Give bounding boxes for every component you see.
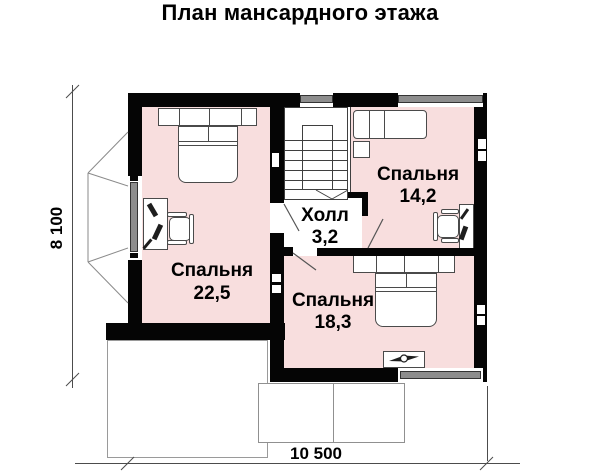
window-jamb xyxy=(130,253,138,258)
bay-window-outline xyxy=(88,132,128,303)
page-title: План мансардного этажа xyxy=(0,0,600,26)
nightstand-symbol xyxy=(353,141,370,158)
double-bed-symbol xyxy=(178,126,238,183)
room-label-bedroom-18: Спальня xyxy=(273,290,393,312)
room-area-bedroom-22: 22,5 xyxy=(152,283,272,305)
wall-center xyxy=(270,93,284,382)
office-chair-symbol xyxy=(437,215,459,238)
terrace-outline xyxy=(107,340,268,458)
wall-bottom-left xyxy=(106,323,285,340)
office-chair-symbol xyxy=(169,217,191,241)
flue-vent xyxy=(478,151,486,161)
headboard-shelf-symbol xyxy=(353,255,455,273)
chair-arm xyxy=(167,212,187,217)
window-top-small xyxy=(300,95,333,103)
chair-arm xyxy=(441,238,459,243)
chair-arm xyxy=(167,240,187,245)
room-label-bedroom-14: Спальня xyxy=(358,164,478,186)
flue-vent xyxy=(477,316,485,325)
dimension-width-label: 10 500 xyxy=(250,444,382,464)
wall-niche xyxy=(272,153,279,167)
bench-symbol xyxy=(383,351,425,368)
room-label-hall: Холл xyxy=(285,205,365,227)
window-top-wide xyxy=(398,95,483,103)
wall-right xyxy=(474,93,487,382)
floor-plan-page: План мансардного этажа xyxy=(0,0,600,471)
staircase-zone xyxy=(284,107,350,200)
room-area-bedroom-14: 14,2 xyxy=(358,186,478,208)
chair-back xyxy=(433,212,438,241)
room-area-bedroom-18: 18,3 xyxy=(273,312,393,334)
chair-arm xyxy=(441,209,459,214)
flue-vent xyxy=(478,139,486,149)
flue-vent xyxy=(477,305,485,314)
room-area-hall: 3,2 xyxy=(285,227,365,249)
flue-vent xyxy=(272,274,281,282)
headboard-shelf-symbol xyxy=(158,108,257,126)
window-jamb xyxy=(130,176,138,181)
dimension-height-label: 8 100 xyxy=(22,193,92,263)
door-opening-bedroom-22 xyxy=(270,203,284,233)
chair-back xyxy=(189,214,194,244)
lower-structure-divider xyxy=(333,384,334,442)
single-bed-symbol xyxy=(353,110,427,139)
window-left-bay xyxy=(130,182,138,252)
lower-structure-outline xyxy=(258,383,405,443)
wall-hall-south xyxy=(317,248,487,256)
room-label-bedroom-22: Спальня xyxy=(152,260,272,282)
window-bottom xyxy=(400,371,481,379)
